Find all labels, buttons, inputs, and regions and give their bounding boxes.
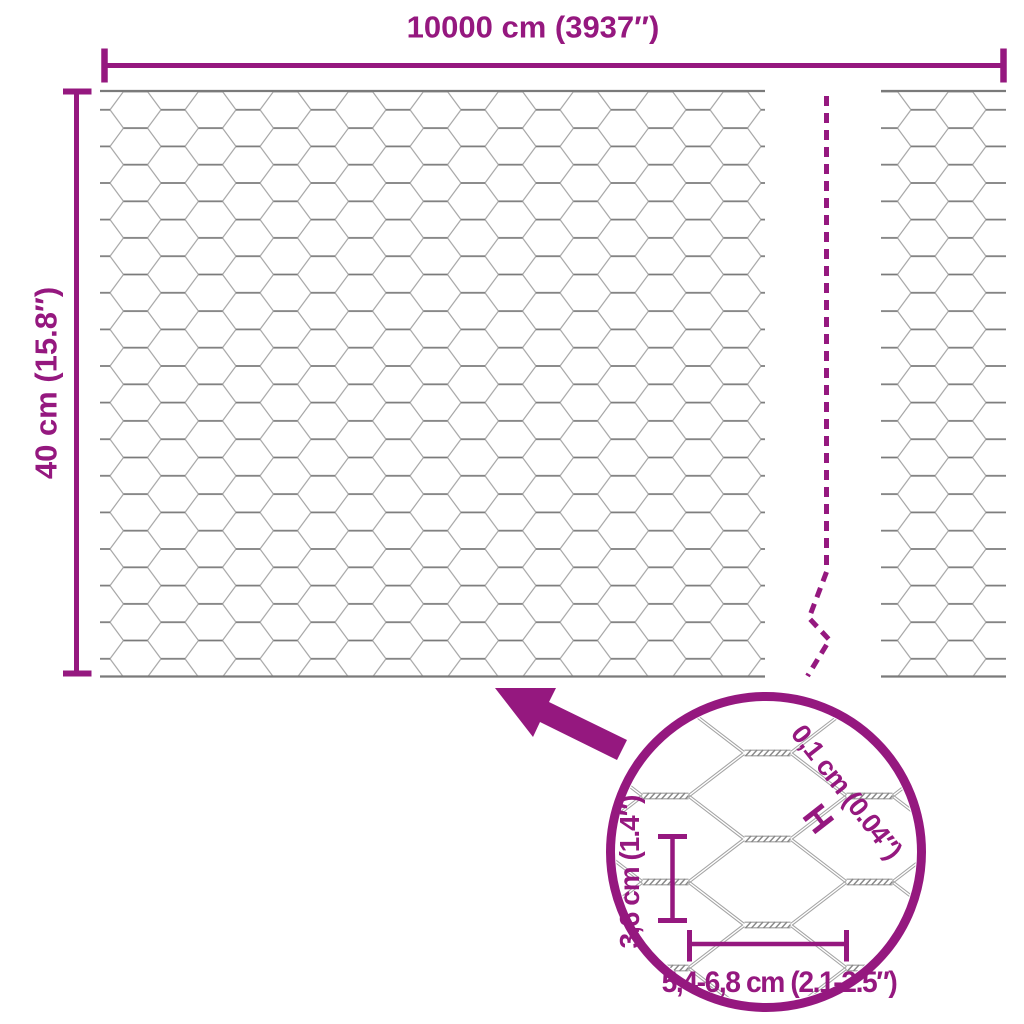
roll-height-label: 40 cm (15.8″) (31, 287, 62, 479)
zoom-arrow (495, 688, 627, 760)
product-dimension-diagram: 10000 cm (3937″) 40 cm (15.8″) 0,1 cm (0… (0, 0, 1024, 1024)
continuation-dashed-line (808, 96, 830, 676)
roll-length-label: 10000 cm (3937″) (407, 12, 660, 43)
mesh-roll (100, 90, 765, 677)
mesh-height-label: 3,6 cm (1.4″) (616, 796, 644, 949)
diagram-graphics (0, 0, 1024, 1024)
mesh-width-label: 5,4-6,8 cm (2.1-2.5″) (662, 968, 897, 998)
mesh-strip (881, 90, 1006, 677)
height-dimension-line (63, 91, 92, 674)
length-dimension-line (105, 49, 1004, 83)
